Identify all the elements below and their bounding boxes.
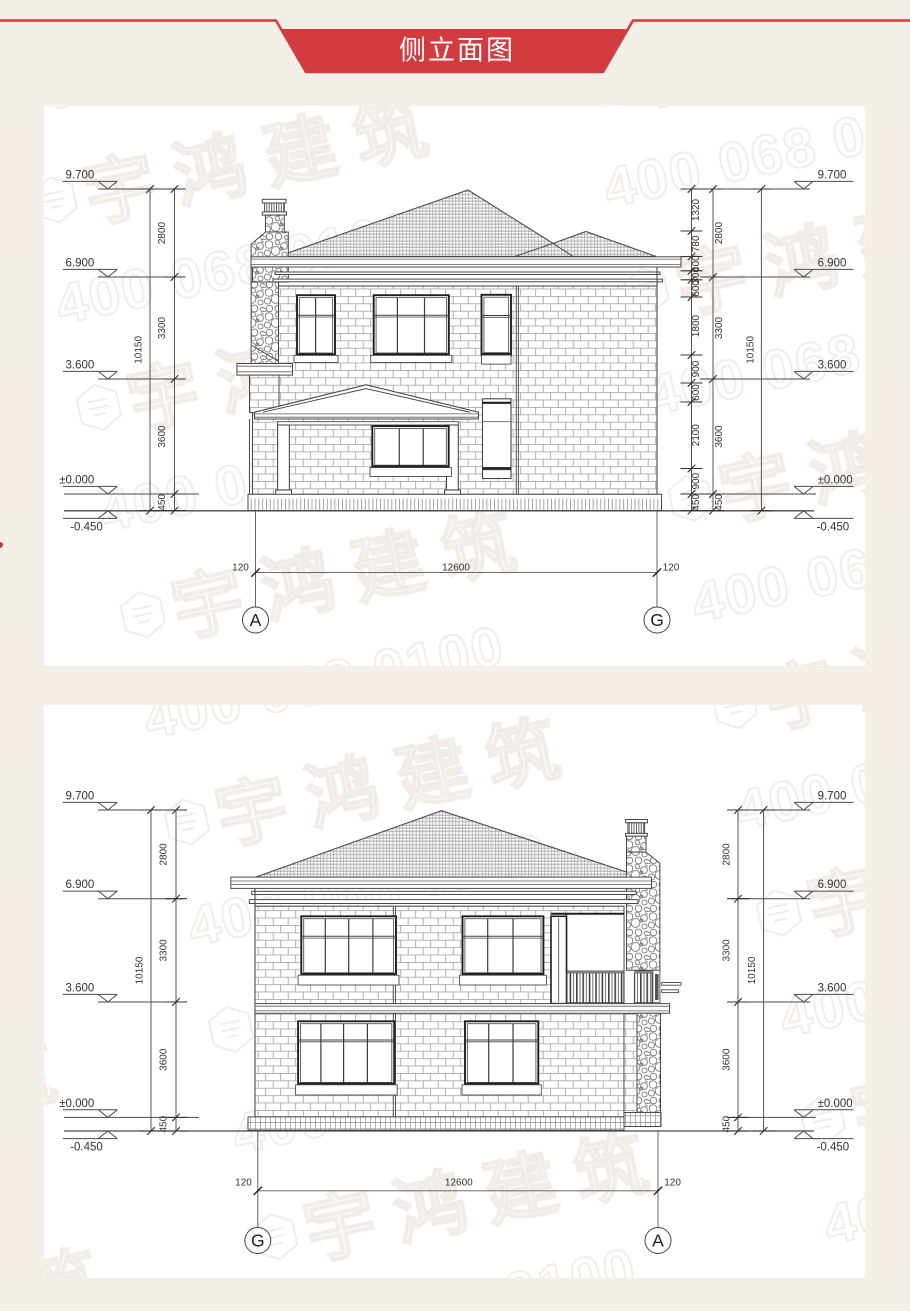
svg-text:120: 120 <box>235 1177 252 1188</box>
svg-text:780: 780 <box>691 235 702 252</box>
svg-text:±0.000: ±0.000 <box>59 1098 94 1110</box>
svg-text:±0.000: ±0.000 <box>818 474 853 486</box>
svg-text:450: 450 <box>691 494 702 511</box>
svg-text:2800: 2800 <box>714 221 725 244</box>
svg-text:600: 600 <box>691 384 702 401</box>
svg-text:6.900: 6.900 <box>818 879 847 891</box>
svg-text:900: 900 <box>691 360 702 377</box>
svg-text:2100: 2100 <box>691 424 702 447</box>
svg-text:-0.450: -0.450 <box>817 521 850 533</box>
svg-text:450: 450 <box>157 494 168 511</box>
svg-text:3300: 3300 <box>714 316 725 339</box>
svg-text:120: 120 <box>232 563 249 574</box>
svg-text:10150: 10150 <box>135 956 146 984</box>
svg-text:6.900: 6.900 <box>66 879 95 891</box>
svg-text:12600: 12600 <box>442 563 470 574</box>
svg-text:3300: 3300 <box>157 316 168 339</box>
svg-text:2800: 2800 <box>157 221 168 244</box>
svg-text:120: 120 <box>664 1177 681 1188</box>
svg-text:1320: 1320 <box>691 198 702 221</box>
svg-text:10150: 10150 <box>134 336 145 364</box>
svg-text:10150: 10150 <box>746 336 757 364</box>
svg-text:6.900: 6.900 <box>818 257 847 269</box>
svg-text:9.700: 9.700 <box>66 790 95 802</box>
svg-text:-0.450: -0.450 <box>70 1142 103 1154</box>
svg-text:120: 120 <box>663 563 680 574</box>
svg-text:侧立面图: 侧立面图 <box>399 36 515 66</box>
svg-text:3.600: 3.600 <box>818 982 847 994</box>
svg-text:12600: 12600 <box>445 1177 473 1188</box>
svg-text:3300: 3300 <box>722 939 733 962</box>
svg-text:450: 450 <box>714 494 725 511</box>
svg-text:-0.450: -0.450 <box>70 521 103 533</box>
svg-text:3600: 3600 <box>714 425 725 448</box>
svg-text:3.600: 3.600 <box>66 359 95 371</box>
svg-text:450: 450 <box>722 1115 733 1132</box>
svg-text:6.900: 6.900 <box>66 257 95 269</box>
svg-text:3600: 3600 <box>159 1048 170 1071</box>
svg-text:9.700: 9.700 <box>818 790 847 802</box>
svg-text:3.600: 3.600 <box>66 982 95 994</box>
svg-text:900: 900 <box>691 472 702 489</box>
svg-text:±0.000: ±0.000 <box>59 474 94 486</box>
svg-text:600: 600 <box>691 280 702 297</box>
svg-text:3300: 3300 <box>159 939 170 962</box>
svg-text:450: 450 <box>159 1115 170 1132</box>
svg-text:G: G <box>650 610 664 630</box>
svg-text:A: A <box>250 610 262 630</box>
svg-text:9.700: 9.700 <box>818 169 847 181</box>
svg-text:2800: 2800 <box>159 843 170 866</box>
svg-text:A: A <box>652 1231 664 1251</box>
svg-text:3600: 3600 <box>722 1048 733 1071</box>
svg-text:10150: 10150 <box>747 956 758 984</box>
svg-text:9.700: 9.700 <box>66 169 95 181</box>
svg-text:±0.000: ±0.000 <box>818 1098 853 1110</box>
svg-text:-0.450: -0.450 <box>817 1142 850 1154</box>
svg-text:3600: 3600 <box>157 425 168 448</box>
svg-text:G: G <box>251 1231 265 1251</box>
svg-text:2800: 2800 <box>722 843 733 866</box>
svg-text:1800: 1800 <box>691 314 702 337</box>
svg-text:3.600: 3.600 <box>818 359 847 371</box>
